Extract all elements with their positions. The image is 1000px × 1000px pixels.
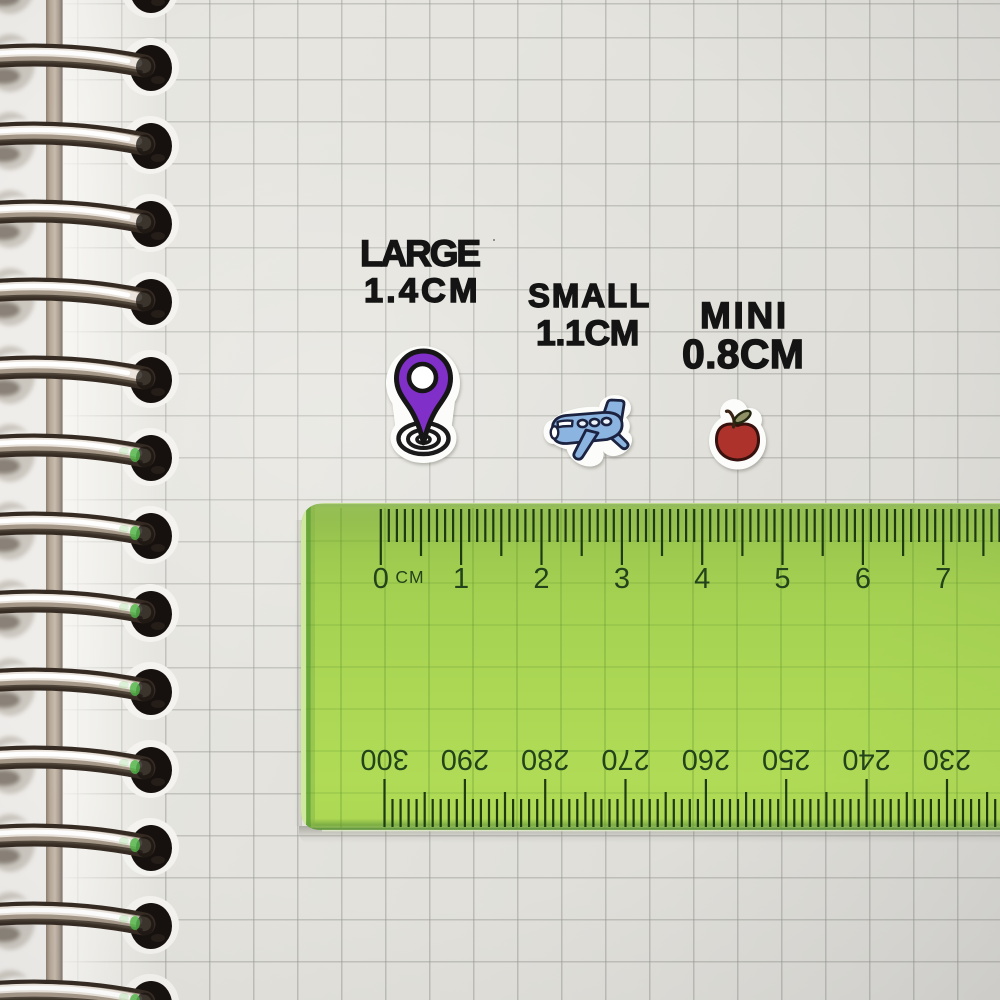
svg-text:280: 280 bbox=[521, 743, 569, 775]
svg-text:4: 4 bbox=[694, 563, 710, 595]
svg-text:260: 260 bbox=[682, 743, 730, 775]
svg-text:6: 6 bbox=[855, 563, 871, 595]
svg-text:270: 270 bbox=[601, 743, 649, 775]
svg-text:0: 0 bbox=[373, 563, 389, 595]
svg-text:230: 230 bbox=[923, 743, 971, 775]
svg-text:1: 1 bbox=[453, 563, 469, 595]
svg-text:290: 290 bbox=[441, 743, 489, 775]
svg-text:2: 2 bbox=[533, 563, 549, 595]
svg-text:7: 7 bbox=[935, 563, 951, 595]
svg-text:240: 240 bbox=[842, 743, 890, 775]
svg-text:3: 3 bbox=[614, 563, 630, 595]
svg-text:5: 5 bbox=[774, 563, 790, 595]
svg-text:CM: CM bbox=[395, 567, 424, 587]
svg-text:250: 250 bbox=[762, 743, 810, 775]
svg-text:300: 300 bbox=[360, 743, 408, 775]
